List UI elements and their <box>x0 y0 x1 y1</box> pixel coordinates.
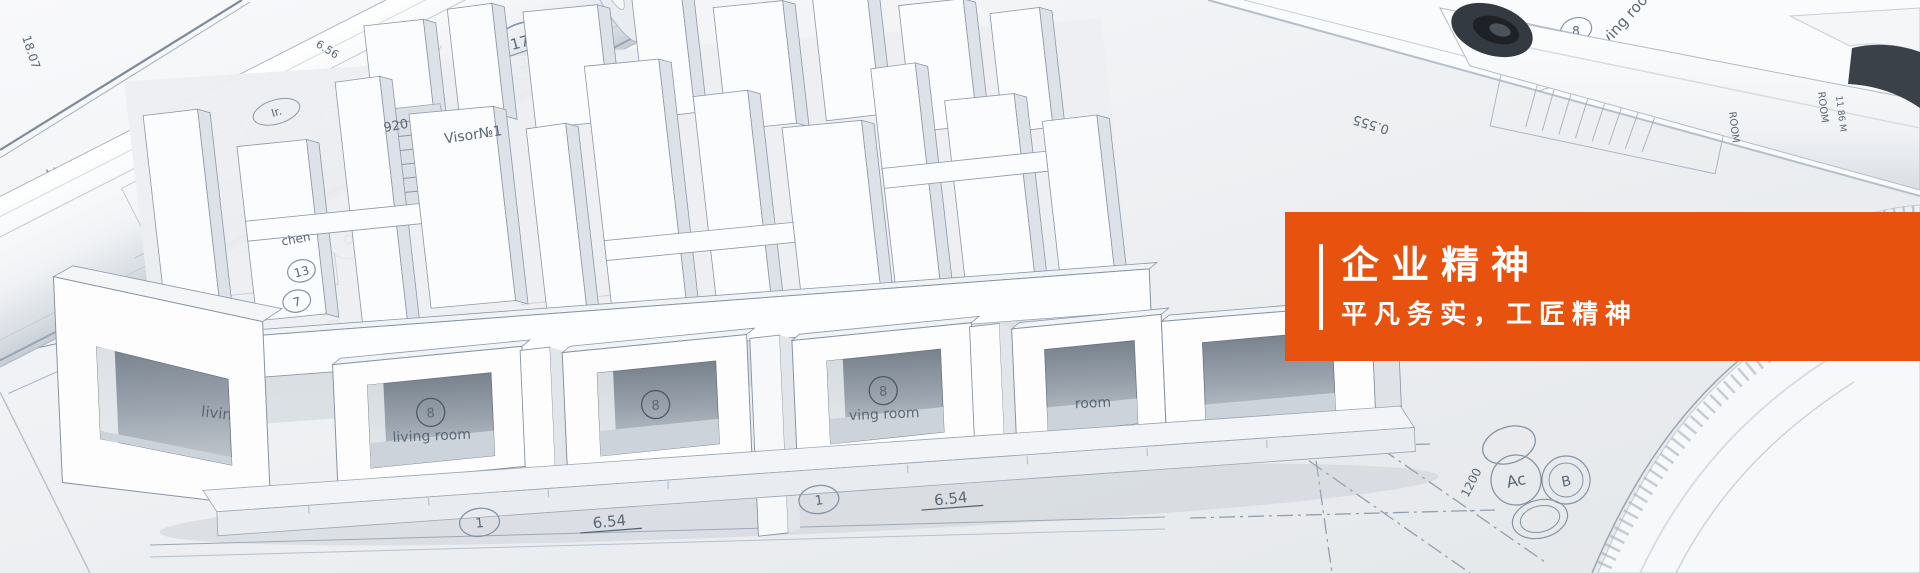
circle-1-label-a: 1 <box>475 516 485 532</box>
marker-ac-label: Ac <box>1505 469 1528 492</box>
circle-1-label-b: 1 <box>814 493 824 509</box>
dimension-654-b: 6.54 <box>933 488 968 509</box>
living-room-label-unit1: living room <box>392 427 471 446</box>
caption-panel: 企业精神 平凡务实，工匠精神 <box>1285 212 1920 361</box>
dimension-654-a: 6.54 <box>592 511 627 532</box>
caption-subtitle: 平凡务实，工匠精神 <box>1341 302 1638 328</box>
ving-room-label-unit3: ving room <box>849 405 920 424</box>
hero-banner: 6 1.25 3 chen 8.4 18.07 17.50 <box>0 0 1920 573</box>
circle-8-unit1: 8 <box>426 406 435 421</box>
circle-8-unit2: 8 <box>651 398 660 413</box>
caption-title: 企业精神 <box>1341 246 1638 284</box>
circle-8-unit3: 8 <box>879 384 888 399</box>
caption-divider <box>1319 244 1323 330</box>
room-label-unit4: room <box>1075 395 1112 413</box>
